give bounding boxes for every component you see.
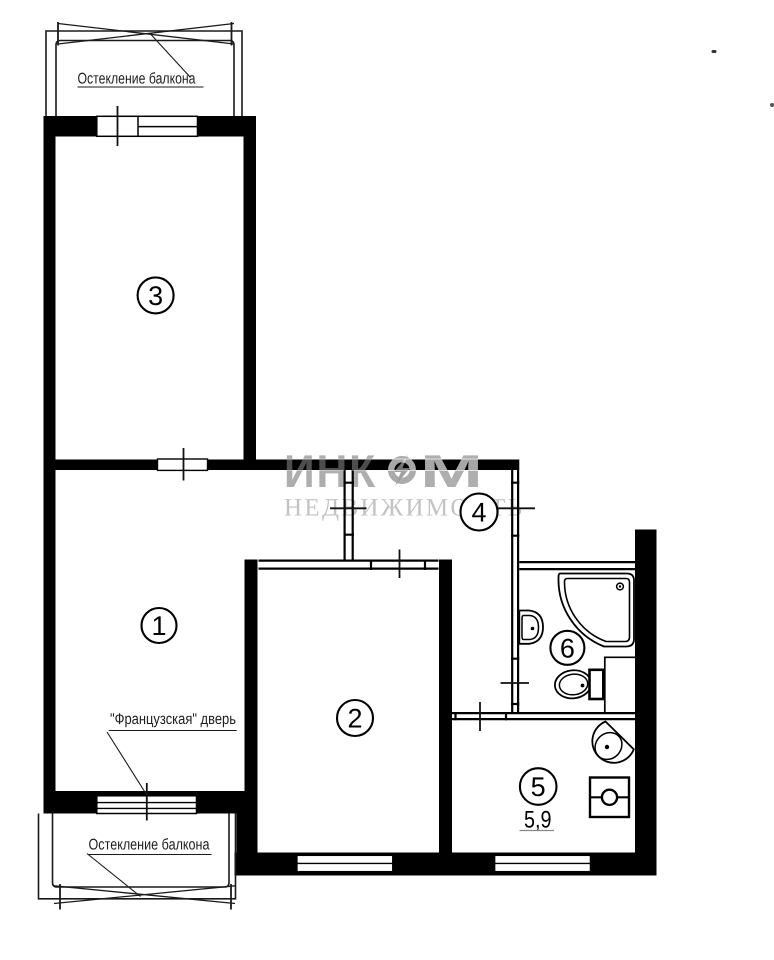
svg-text:3: 3 xyxy=(148,281,163,311)
svg-text:Остекление балкона: Остекление балкона xyxy=(78,71,196,88)
svg-text:Остекление балкона: Остекление балкона xyxy=(89,837,210,854)
svg-text:1: 1 xyxy=(151,611,166,641)
svg-text:2: 2 xyxy=(347,704,362,734)
svg-text:"Французская" дверь: "Французская" дверь xyxy=(110,711,236,728)
svg-text:6: 6 xyxy=(560,633,575,663)
svg-text:5,9: 5,9 xyxy=(524,807,552,834)
svg-text:5: 5 xyxy=(531,772,546,802)
svg-text:4: 4 xyxy=(471,498,486,528)
